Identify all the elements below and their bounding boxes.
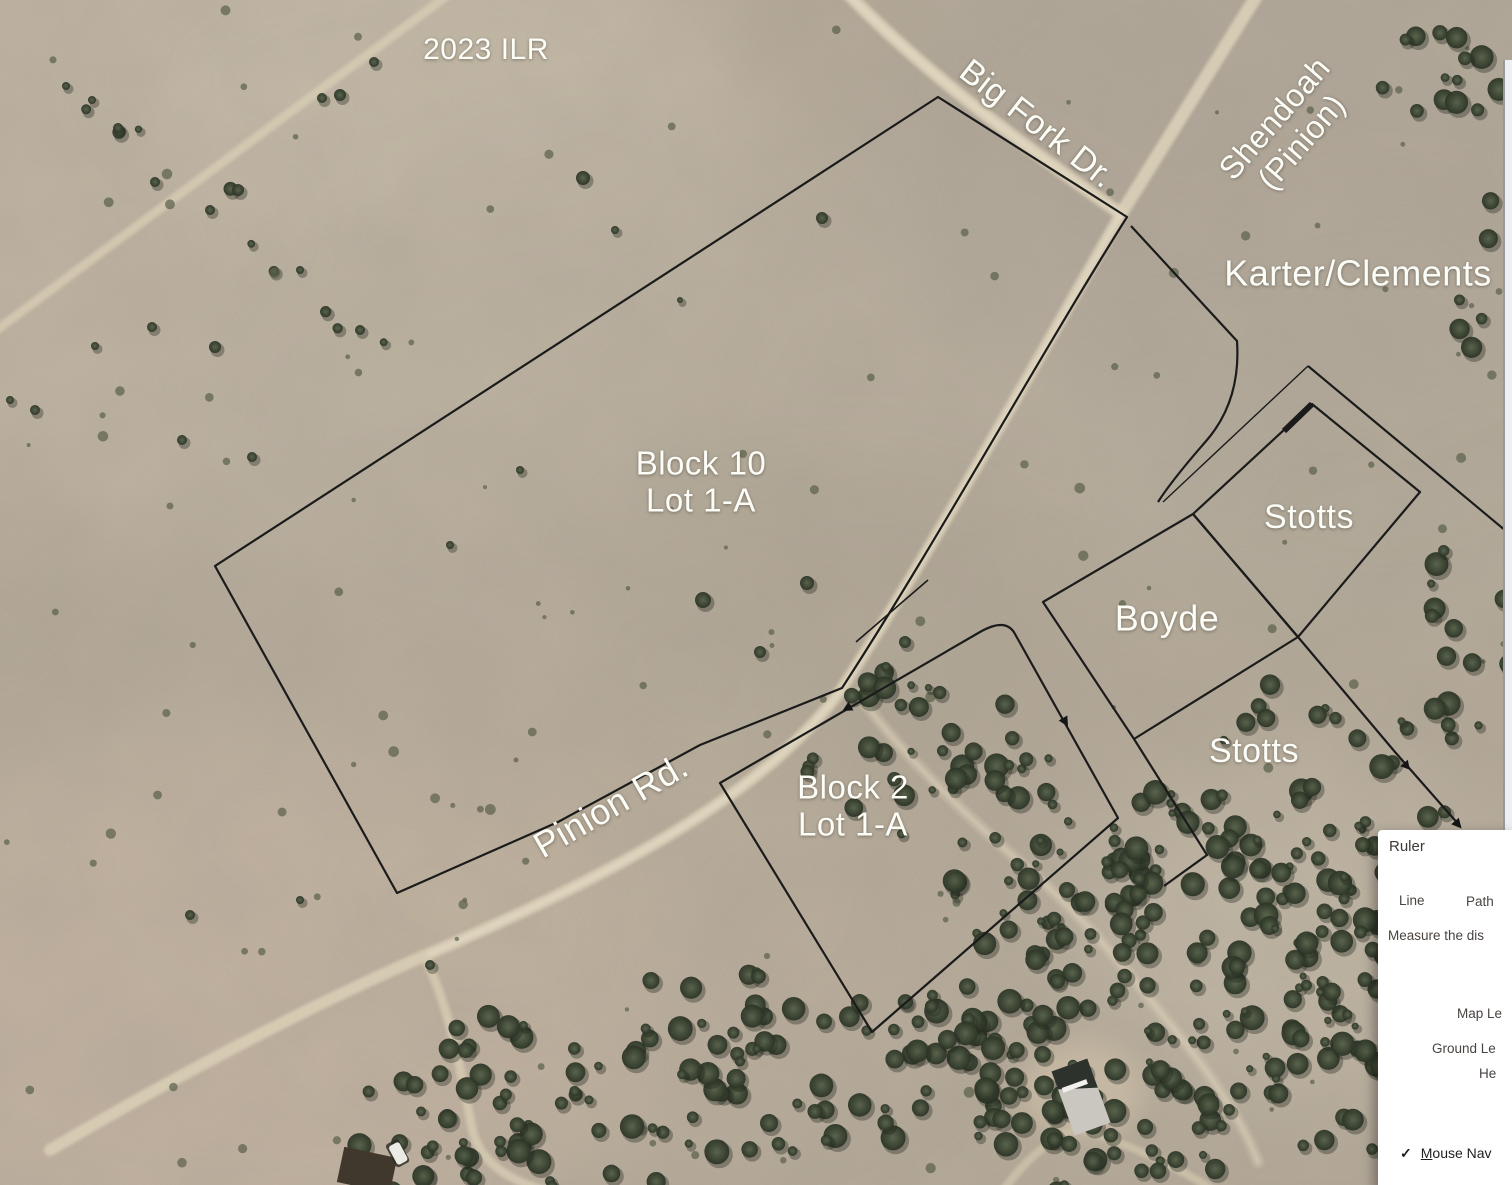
ruler-dialog-title: Ruler: [1389, 838, 1425, 855]
map-length-label: Map Le: [1457, 1006, 1502, 1021]
parcel-label-stotts-south: Stotts: [1209, 732, 1299, 770]
ground-length-label: Ground Le: [1432, 1041, 1496, 1056]
tab-path[interactable]: Path: [1466, 894, 1494, 909]
heading-label: He: [1479, 1066, 1496, 1081]
tab-line[interactable]: Line: [1399, 893, 1425, 908]
map-title-overlay: 2023 ILR: [423, 33, 549, 67]
parcel-label-karter-clements: Karter/Clements: [1224, 254, 1492, 295]
parcel-label-block10: Block 10 Lot 1-A: [636, 445, 767, 520]
mouse-navigation-label: Mouse Nav: [1421, 1145, 1492, 1161]
ruler-dialog: Ruler Line Path Measure the dis Map Le G…: [1378, 830, 1512, 1185]
parcel-label-boyde: Boyde: [1115, 599, 1220, 640]
map-viewport: 2023 ILR Big Fork Dr. Shendoah (Pinion) …: [0, 0, 1512, 1185]
ruler-description: Measure the dis: [1388, 928, 1484, 943]
parcel-label-stotts-north: Stotts: [1264, 498, 1354, 536]
mouse-navigation-checkbox[interactable]: ✓Mouse Nav: [1400, 1145, 1492, 1162]
parcel-label-block2: Block 2 Lot 1-A: [797, 769, 909, 844]
checkmark-icon: ✓: [1400, 1145, 1412, 1161]
